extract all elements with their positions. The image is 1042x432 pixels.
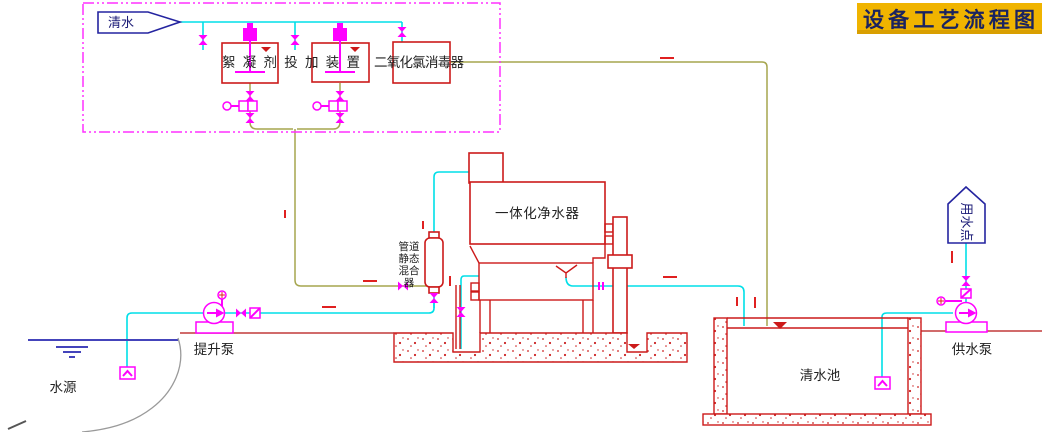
- drain-valve-icon: [457, 307, 466, 317]
- valve-icon: [336, 113, 345, 123]
- lift-pump-label: 提升泵: [194, 342, 235, 357]
- valve-icon: [246, 113, 255, 123]
- valve-icon: [291, 35, 300, 45]
- valve-icon: [398, 27, 407, 37]
- sump-water-level-icon: [628, 344, 640, 349]
- svg-text:管道: 管道: [399, 240, 420, 253]
- outlet-weir: [556, 265, 577, 278]
- process-flow-diagram: 清水 絮凝剂投加装置 二氧化氯消毒器: [0, 0, 1042, 432]
- valve-icon: [430, 293, 439, 303]
- check-valve-icon: [250, 308, 260, 318]
- corner-artifact: [8, 421, 26, 429]
- supply-pump-label: 供水泵: [952, 342, 993, 357]
- diagram-title: 设备工艺流程图: [863, 8, 1035, 32]
- purifier-foundation: [394, 333, 687, 362]
- supply-pump: [937, 289, 987, 332]
- svg-text:器: 器: [404, 277, 415, 289]
- valve-icon: [199, 35, 208, 45]
- clean-water-tag: 清水: [98, 12, 180, 33]
- foot-valve-icon: [875, 377, 890, 389]
- water-source-label: 水源: [50, 380, 77, 395]
- purifier-label: 一体化净水器: [495, 206, 580, 221]
- integrated-purifier: [456, 153, 632, 349]
- lift-pump: [196, 291, 233, 333]
- clean-water-tag-label: 清水: [108, 15, 134, 30]
- foot-valve-icon: [120, 367, 135, 379]
- backwash-standpipe: [613, 217, 627, 333]
- static-mixer-label: 管道 静态 混合 器: [399, 240, 420, 289]
- clear-water-pool-label: 清水池: [800, 368, 841, 383]
- use-point-label: 用水点: [959, 202, 974, 241]
- metering-pump-1: [223, 101, 257, 111]
- dosing-tank-1: [222, 23, 278, 83]
- svg-text:静态: 静态: [399, 252, 420, 265]
- water-source: [8, 338, 181, 432]
- svg-text:混合: 混合: [399, 264, 420, 277]
- valve-icon: [336, 91, 345, 101]
- valve-icon: [962, 276, 971, 286]
- valve-icon: [236, 309, 246, 318]
- title-banner: 设备工艺流程图: [857, 3, 1042, 34]
- static-mixer: [425, 232, 443, 293]
- use-point-tag: 用水点: [948, 187, 985, 243]
- metering-pump-2: [313, 101, 347, 111]
- dosing-tank-2: [312, 23, 369, 82]
- disinfector-label: 二氧化氯消毒器: [374, 55, 465, 70]
- valve-icon: [246, 91, 255, 101]
